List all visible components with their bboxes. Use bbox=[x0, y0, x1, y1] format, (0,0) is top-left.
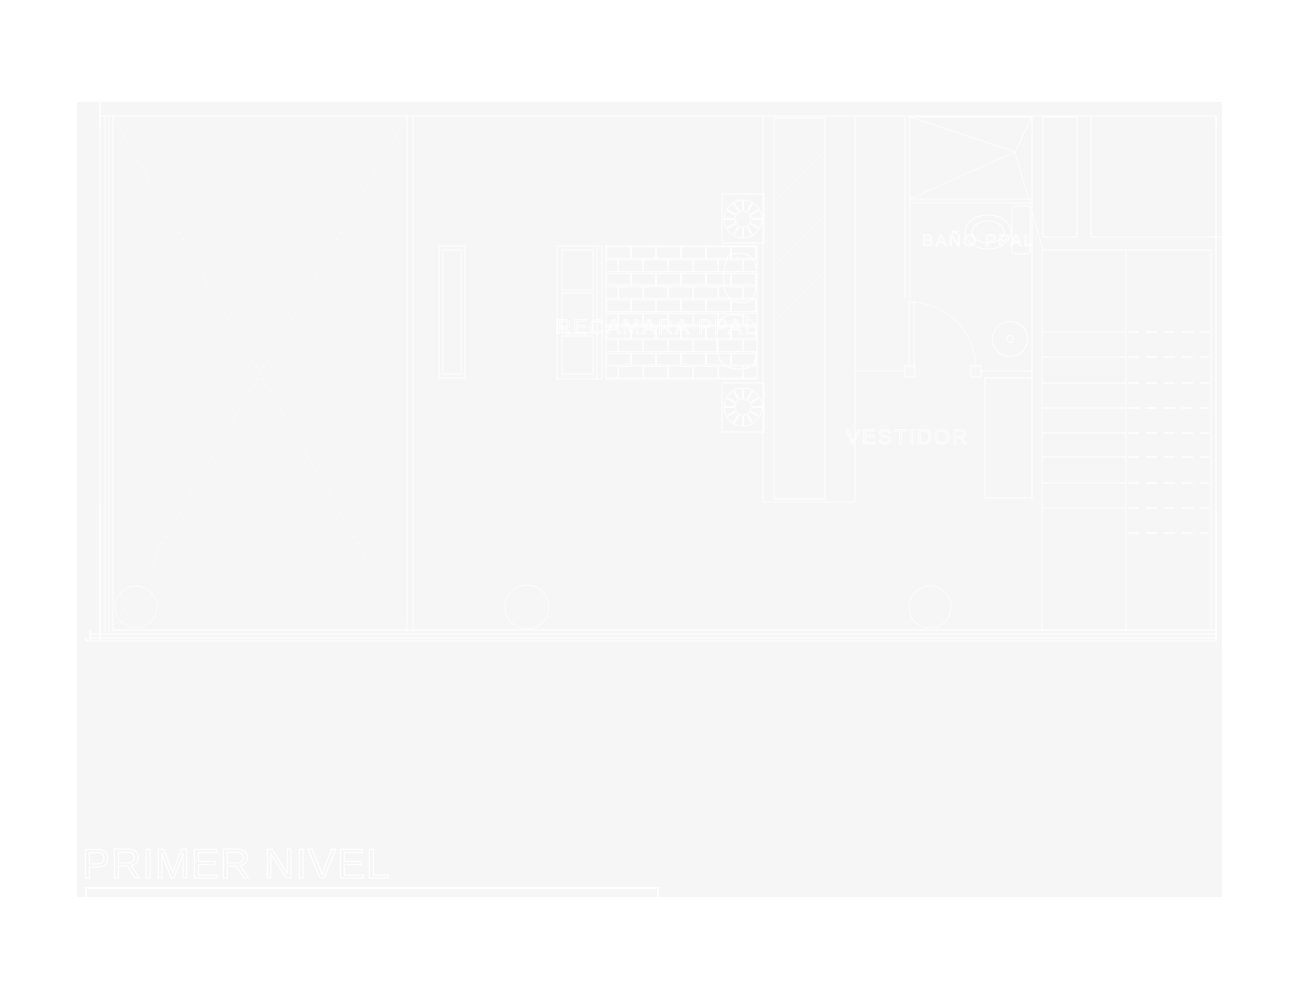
side-table-icon bbox=[993, 322, 1028, 357]
staircase bbox=[1042, 250, 1211, 630]
door bbox=[905, 300, 981, 377]
door-swing-left bbox=[115, 586, 157, 628]
label-master-bedroom: RECAMARA PPAL bbox=[556, 316, 758, 339]
duct-shaft bbox=[985, 378, 1032, 498]
wardrobe bbox=[557, 246, 602, 379]
title-block bbox=[86, 888, 658, 897]
label-master-bathroom: BAÑO PPAL bbox=[922, 231, 1035, 250]
stair-treads-upper bbox=[1128, 332, 1209, 533]
door-arc bbox=[909, 302, 976, 369]
label-dressing-room: VESTIDOR bbox=[846, 426, 969, 449]
plant-icon bbox=[724, 200, 762, 238]
bed-quilt bbox=[606, 246, 757, 379]
hatched-wall-shaft bbox=[763, 117, 855, 502]
top-right-closet bbox=[1043, 116, 1222, 237]
floor-plan: RECAMARA PPAL VESTIDOR BAÑO PPAL PRIMER … bbox=[77, 102, 1222, 897]
void-room bbox=[105, 117, 413, 632]
door-swing-middle bbox=[505, 585, 549, 629]
door-swings bbox=[115, 585, 951, 629]
dressing-room bbox=[855, 300, 1032, 498]
bed bbox=[557, 194, 764, 432]
void-x-marks bbox=[113, 117, 407, 630]
plan-title: PRIMER NIVEL bbox=[82, 840, 390, 887]
stair-treads-lower bbox=[1042, 332, 1126, 508]
plant-icon bbox=[724, 388, 762, 426]
drawing-canvas: RECAMARA PPAL VESTIDOR BAÑO PPAL PRIMER … bbox=[77, 102, 1222, 897]
door-swing-right bbox=[909, 586, 951, 628]
wall-pier bbox=[439, 246, 465, 378]
